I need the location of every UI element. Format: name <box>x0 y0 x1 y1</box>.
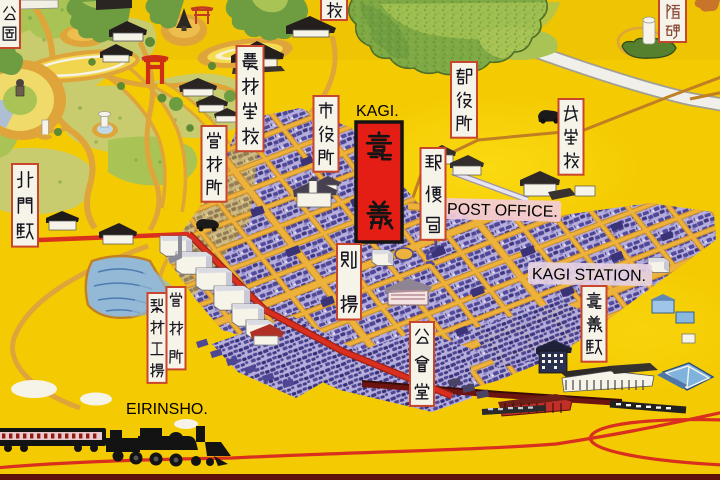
svg-text:KAGI.: KAGI. <box>356 103 399 120</box>
svg-text:EIRINSHO.: EIRINSHO. <box>126 401 208 418</box>
svg-text:POST OFFICE.: POST OFFICE. <box>447 201 558 221</box>
svg-text:KAGI STATION.: KAGI STATION. <box>532 266 646 285</box>
